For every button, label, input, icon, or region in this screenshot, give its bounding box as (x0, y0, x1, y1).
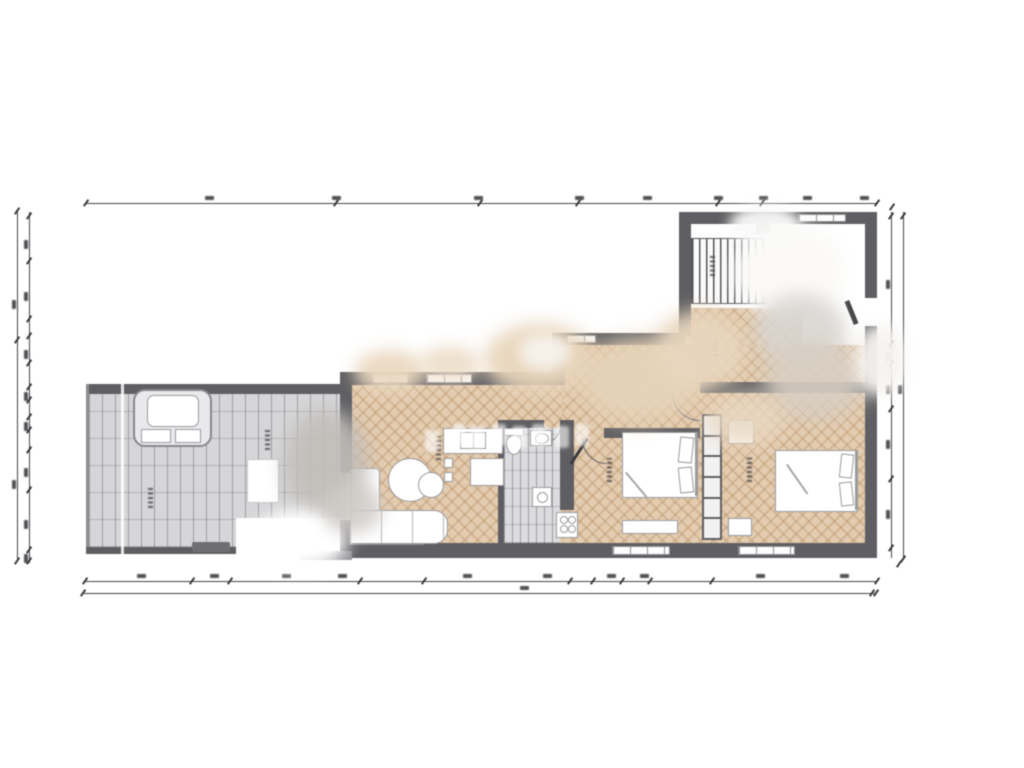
dimension-number-illegible (640, 574, 649, 578)
watermark-blob (322, 482, 382, 534)
watermark-blob (654, 310, 746, 390)
hot-tub-seat-left (141, 429, 171, 443)
terrace-label-illegible (148, 486, 153, 508)
terrace-label-2-illegible (265, 430, 270, 450)
dimension-number-illegible (24, 292, 28, 301)
wardrobe-shelf (704, 478, 720, 497)
watermark-blob (519, 334, 571, 370)
wardrobe-shelf (704, 499, 720, 518)
hot-tub-seat-right (175, 429, 201, 443)
kitchen-appliance (556, 512, 578, 538)
bedroom-1-sideboard (622, 520, 678, 534)
dimension-line-horizontal (83, 593, 876, 594)
floor-plan-canvas (0, 0, 1024, 768)
dimension-number-illegible (24, 240, 28, 249)
dimension-number-illegible (474, 196, 483, 200)
bedroom-1-label-illegible (607, 458, 612, 482)
bed-2-pillow-top (839, 453, 854, 478)
bed-2-pillow-bottom (839, 481, 854, 506)
dimension-number-illegible (205, 196, 214, 200)
washing-machine (532, 487, 552, 507)
dimension-line-vertical (17, 210, 18, 560)
dimension-number-illegible (714, 196, 723, 200)
dimension-number-illegible (860, 196, 869, 200)
watermark-ghost-letter (470, 426, 484, 448)
bedroom-2-label-illegible (747, 456, 752, 482)
dimension-number-illegible (759, 196, 768, 200)
dining-table (470, 458, 504, 486)
dimension-number-illegible (520, 586, 529, 590)
dimension-number-illegible (840, 574, 849, 578)
dimension-number-illegible (24, 392, 28, 401)
watermark-blob (729, 205, 801, 245)
burner (568, 525, 576, 533)
entry-door-leaf (844, 300, 858, 325)
burner (560, 516, 568, 524)
terrace-top-wall (86, 384, 348, 394)
dimension-number-illegible (24, 422, 28, 431)
watermark-blob (420, 346, 480, 382)
hot-tub-basin (147, 395, 199, 427)
dimension-line-vertical (903, 212, 904, 560)
watermark-ghost-letter (532, 424, 546, 446)
dimension-number-illegible (543, 574, 552, 578)
drum (537, 492, 548, 503)
dimension-number-illegible (803, 196, 812, 200)
wardrobe-shelf (704, 519, 720, 538)
bed-2 (775, 450, 858, 512)
bed-1-pillow-bottom (678, 466, 695, 493)
dimension-number-illegible (575, 196, 584, 200)
floor-plan-drawing (0, 0, 1024, 768)
dimension-end-mark (889, 203, 895, 211)
dimension-number-illegible (210, 574, 219, 578)
dimension-number-illegible (898, 385, 902, 394)
dimension-tick (874, 577, 880, 585)
bedroom2-window (738, 546, 795, 555)
entry-door-opening (865, 298, 877, 326)
wardrobe-shelf (704, 457, 720, 476)
dimension-number-illegible (24, 554, 28, 563)
watermark-blob (705, 394, 785, 446)
dimension-end-mark (896, 560, 902, 568)
dimension-number-illegible (12, 300, 16, 309)
dimension-line-horizontal (86, 203, 877, 204)
terrace-left-wall (86, 384, 89, 554)
dining-chair-2 (444, 472, 453, 482)
dimension-number-illegible (643, 196, 652, 200)
bed-1-headboard (695, 433, 698, 496)
bed-2-headboard (855, 451, 858, 510)
bottom-wall (340, 543, 877, 558)
dimension-number-illegible (332, 196, 341, 200)
dimension-number-illegible (886, 280, 890, 289)
bed-1-pillow-top (678, 436, 695, 463)
scan-crease-line (121, 384, 124, 556)
hot-tub (133, 389, 212, 447)
coffee-table-small (418, 472, 444, 498)
dimension-line-horizontal (85, 581, 877, 582)
burner (560, 525, 568, 533)
burner (568, 516, 576, 524)
watermark-blob (854, 324, 906, 396)
dimension-number-illegible (137, 574, 146, 578)
bedroom1-window (612, 546, 670, 555)
dimension-number-illegible (282, 574, 291, 578)
dimension-number-illegible (886, 440, 890, 449)
dimension-number-illegible (463, 574, 472, 578)
bed-1 (622, 432, 698, 498)
entry-top-window (798, 214, 846, 222)
watermark-blob (354, 350, 426, 394)
dimension-number-illegible (338, 574, 347, 578)
dimension-number-illegible (607, 574, 616, 578)
watermark-ghost-letter (425, 430, 439, 452)
dining-chair-1 (444, 458, 453, 468)
watermark-ghost-letter (452, 424, 466, 446)
dimension-number-illegible (24, 520, 28, 529)
dimension-number-illegible (24, 350, 28, 359)
watermark-ghost-letter (512, 426, 526, 448)
dimension-tick (874, 199, 880, 207)
dimension-number-illegible (756, 574, 765, 578)
watermark-ghost-letter (575, 424, 589, 446)
dimension-number-illegible (24, 468, 28, 477)
dimension-tick (14, 557, 20, 565)
watermark-ghost-letter (492, 424, 506, 446)
outdoor-table (247, 459, 279, 503)
dimension-number-illegible (886, 510, 890, 519)
doormat (192, 542, 230, 552)
bedroom-2-sideboard (728, 518, 752, 536)
stairs-label-illegible (710, 256, 715, 276)
bed-2-blanket-fold (786, 464, 808, 494)
watermark-ghost-letter (555, 426, 569, 448)
dimension-number-illegible (12, 480, 16, 489)
bed-1-blanket-fold (625, 472, 648, 499)
